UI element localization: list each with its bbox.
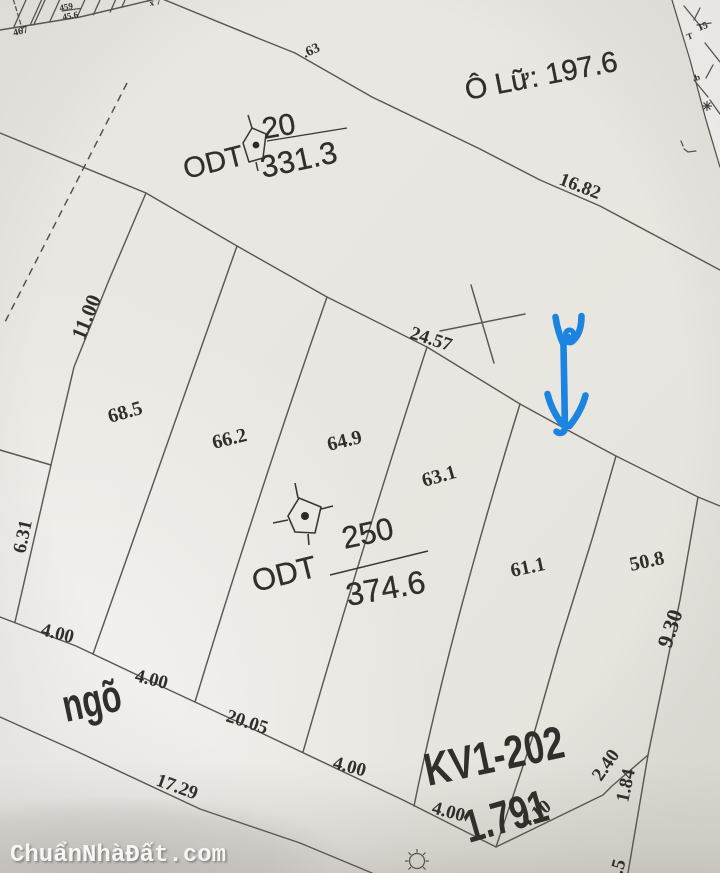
svg-text:ChuẩnNhàĐất.com: ChuẩnNhàĐất.com bbox=[10, 841, 226, 869]
svg-text:20: 20 bbox=[259, 108, 298, 146]
